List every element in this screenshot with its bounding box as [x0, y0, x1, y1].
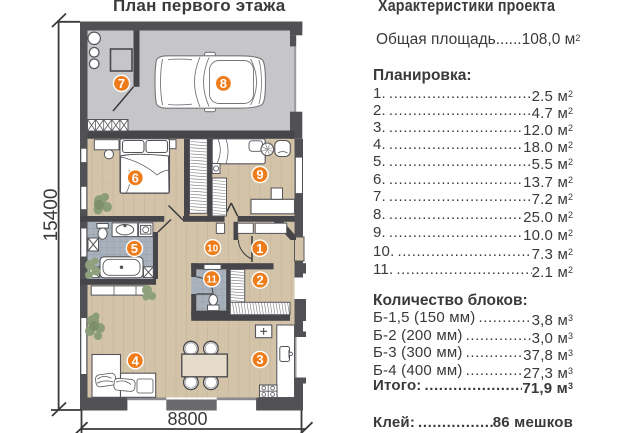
svg-text:5: 5	[131, 241, 138, 256]
svg-text:4: 4	[132, 353, 140, 368]
svg-text:11: 11	[206, 274, 217, 285]
svg-text:8: 8	[220, 76, 227, 91]
svg-text:2: 2	[256, 273, 263, 288]
svg-text:1: 1	[256, 241, 263, 256]
svg-text:9: 9	[256, 167, 263, 182]
svg-text:10: 10	[207, 243, 219, 254]
svg-text:7: 7	[118, 76, 125, 91]
svg-text:6: 6	[132, 170, 139, 185]
svg-text:3: 3	[256, 352, 263, 367]
